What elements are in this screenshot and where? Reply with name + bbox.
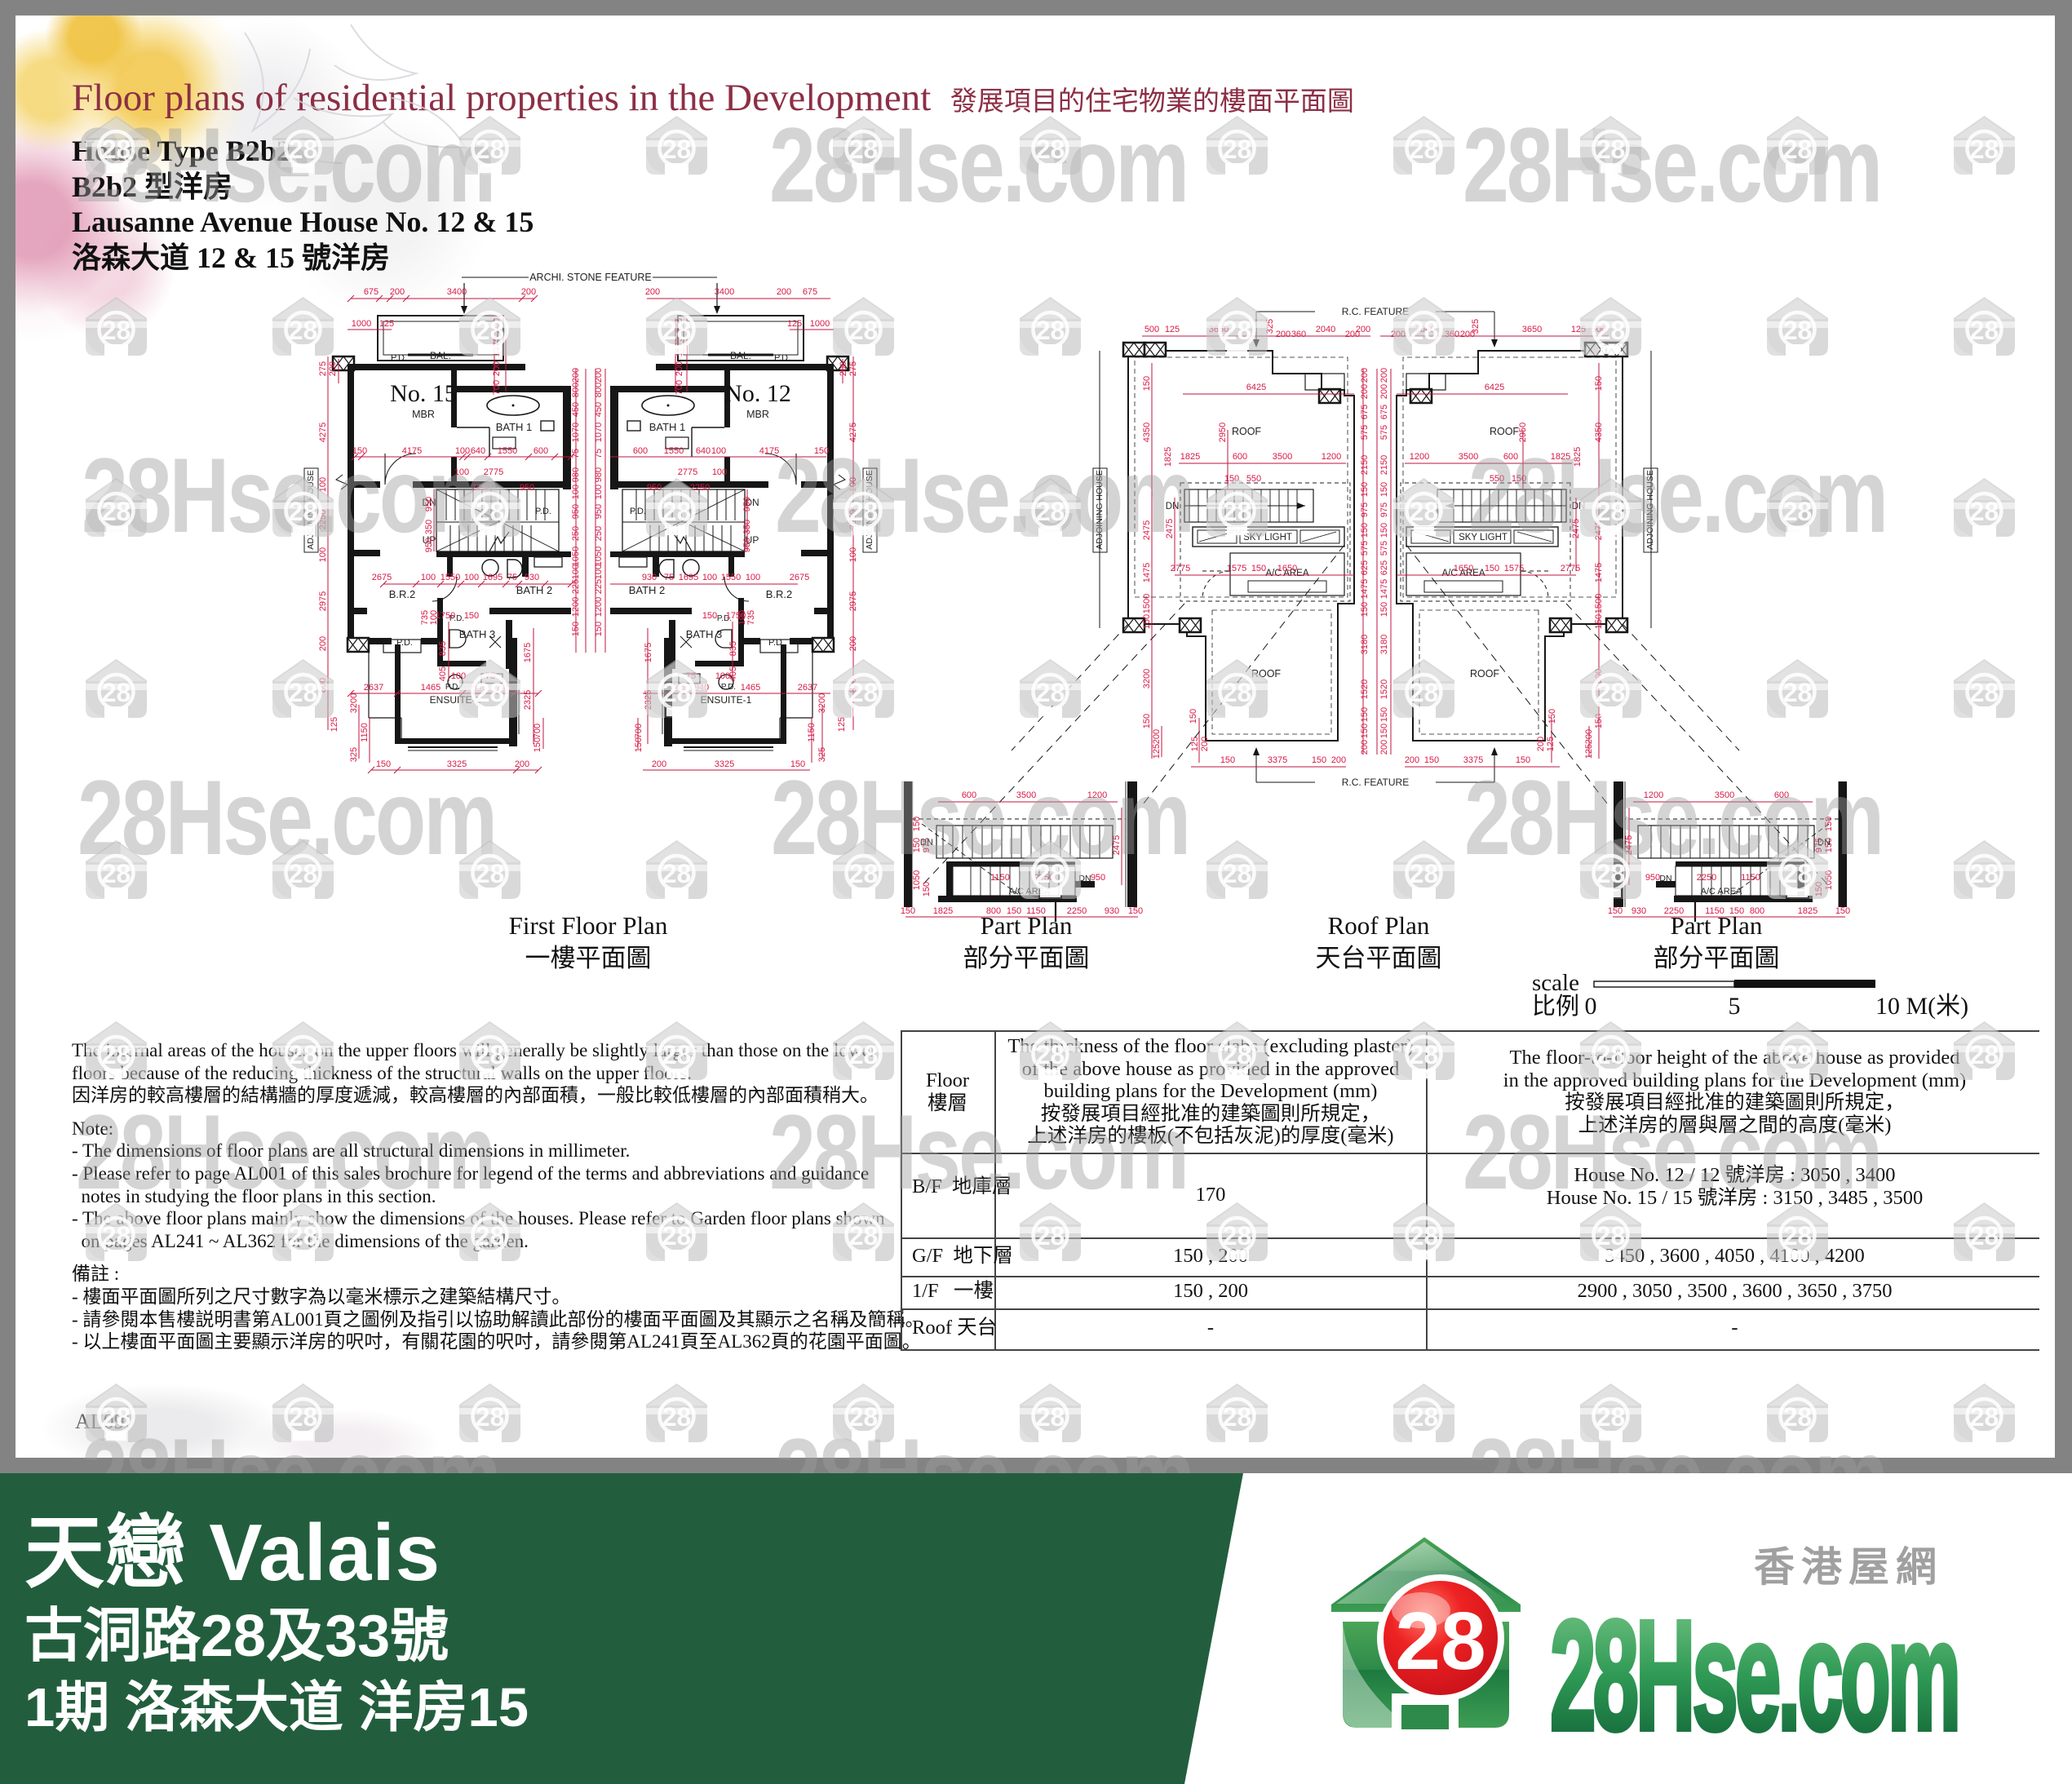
- svg-text:1695: 1695: [679, 573, 698, 582]
- svg-text:835: 835: [728, 641, 738, 656]
- svg-text:275: 275: [318, 361, 328, 376]
- svg-text:150: 150: [1360, 724, 1370, 738]
- svg-text:625: 625: [1360, 560, 1370, 575]
- svg-text:150: 150: [1360, 707, 1370, 722]
- svg-text:200: 200: [515, 759, 529, 769]
- svg-text:SKY LIGHT: SKY LIGHT: [1459, 533, 1508, 542]
- svg-text:3200: 3200: [349, 693, 359, 713]
- svg-text:2775: 2775: [484, 467, 503, 477]
- svg-text:SKY LIGHT: SKY LIGHT: [1243, 533, 1292, 542]
- svg-text:200: 200: [1405, 755, 1419, 765]
- svg-text:75: 75: [485, 671, 495, 681]
- svg-text:125: 125: [1571, 325, 1586, 334]
- svg-text:150: 150: [1360, 602, 1370, 617]
- svg-text:200: 200: [1331, 755, 1346, 765]
- svg-text:P.D.: P.D.: [396, 638, 413, 648]
- svg-text:600: 600: [1774, 790, 1789, 800]
- svg-text:150: 150: [1142, 614, 1152, 629]
- svg-text:DN: DN: [1572, 502, 1586, 511]
- svg-text:100: 100: [454, 467, 469, 477]
- svg-text:575: 575: [1360, 541, 1370, 556]
- svg-text:700: 700: [634, 724, 644, 738]
- svg-text:500: 500: [1144, 325, 1159, 334]
- svg-text:75: 75: [664, 573, 674, 582]
- svg-text:部分平面圖: 部分平面圖: [1654, 944, 1780, 972]
- svg-text:150: 150: [1379, 602, 1389, 617]
- svg-text:No. 15: No. 15: [390, 380, 457, 407]
- svg-text:2250: 2250: [318, 510, 328, 529]
- svg-text:150: 150: [1220, 755, 1235, 765]
- svg-text:200: 200: [492, 361, 502, 376]
- svg-text:1675: 1675: [523, 643, 533, 662]
- svg-text:405: 405: [438, 666, 448, 681]
- svg-text:BATH 3: BATH 3: [686, 628, 723, 640]
- svg-text:2325: 2325: [644, 690, 653, 710]
- svg-text:3180: 3180: [1360, 635, 1370, 654]
- svg-text:BATH 1: BATH 1: [649, 421, 686, 433]
- svg-text:700: 700: [533, 724, 542, 738]
- svg-text:比例: 比例: [1532, 993, 1579, 1020]
- svg-text:150: 150: [533, 737, 542, 752]
- svg-text:150: 150: [1547, 709, 1557, 724]
- svg-text:150: 150: [1516, 755, 1530, 765]
- svg-text:100: 100: [451, 671, 466, 681]
- svg-text:200: 200: [675, 318, 684, 333]
- svg-text:640: 640: [696, 446, 711, 456]
- svg-text:1475: 1475: [1142, 563, 1152, 582]
- svg-text:100: 100: [421, 573, 436, 582]
- svg-text:200: 200: [390, 287, 405, 297]
- svg-text:2475: 2475: [1165, 519, 1175, 538]
- svg-text:550: 550: [1246, 474, 1261, 484]
- svg-text:BATH 1: BATH 1: [496, 421, 533, 433]
- svg-text:200: 200: [1360, 384, 1370, 399]
- svg-text:2950: 2950: [1218, 423, 1228, 442]
- svg-text:A/C AREA: A/C AREA: [1701, 887, 1742, 896]
- svg-text:2675: 2675: [790, 573, 809, 582]
- svg-text:DN: DN: [1817, 838, 1831, 848]
- svg-text:1550: 1550: [721, 573, 741, 582]
- svg-text:200: 200: [645, 287, 660, 297]
- svg-text:1150: 1150: [360, 723, 370, 742]
- svg-text:975: 975: [1360, 502, 1370, 517]
- svg-text:200: 200: [1379, 740, 1389, 755]
- svg-text:150: 150: [1608, 906, 1623, 916]
- svg-text:100: 100: [746, 573, 760, 582]
- svg-text:1475: 1475: [1379, 579, 1389, 599]
- svg-text:4175: 4175: [759, 446, 779, 456]
- svg-text:930: 930: [525, 573, 539, 582]
- svg-text:1050: 1050: [1824, 870, 1834, 890]
- svg-text:P.D.: P.D.: [721, 683, 736, 692]
- svg-text:360: 360: [1291, 330, 1306, 339]
- svg-text:2637: 2637: [798, 683, 817, 693]
- svg-text:100: 100: [715, 671, 730, 681]
- svg-text:600: 600: [533, 446, 548, 456]
- svg-text:200: 200: [1360, 740, 1370, 755]
- svg-text:Part Plan: Part Plan: [1671, 911, 1763, 940]
- svg-text:200: 200: [839, 361, 848, 376]
- svg-text:200: 200: [1379, 368, 1389, 383]
- svg-text:一樓平面圖: 一樓平面圖: [525, 944, 652, 972]
- svg-text:200: 200: [318, 636, 328, 651]
- svg-text:200: 200: [1391, 330, 1406, 339]
- svg-text:150: 150: [1379, 523, 1389, 538]
- svg-text:天台平面圖: 天台平面圖: [1316, 944, 1442, 972]
- svg-text:BAL.: BAL.: [430, 350, 451, 361]
- svg-text:1550: 1550: [498, 446, 517, 456]
- svg-text:200: 200: [1356, 325, 1370, 334]
- svg-text:200: 200: [1536, 737, 1546, 751]
- svg-text:Roof Plan: Roof Plan: [1328, 911, 1430, 940]
- svg-text:R.C. FEATURE: R.C. FEATURE: [1342, 306, 1409, 317]
- svg-text:3180: 3180: [1379, 635, 1389, 654]
- svg-text:ADJOINING HOUSE: ADJOINING HOUSE: [865, 470, 874, 549]
- svg-text:150: 150: [790, 759, 805, 769]
- svg-text:ENSUITE-1: ENSUITE-1: [701, 694, 752, 706]
- svg-text:150: 150: [1189, 709, 1198, 724]
- svg-text:2150: 2150: [1379, 455, 1389, 475]
- svg-text:3325: 3325: [447, 759, 467, 769]
- svg-text:150: 150: [1814, 882, 1824, 896]
- svg-text:3500: 3500: [1459, 452, 1478, 462]
- svg-text:1150: 1150: [990, 873, 1010, 883]
- svg-text:125: 125: [1546, 737, 1556, 751]
- svg-text:200: 200: [675, 361, 684, 376]
- svg-text:1000: 1000: [810, 319, 830, 329]
- svg-text:640: 640: [471, 446, 485, 456]
- svg-text:1825: 1825: [1163, 447, 1173, 467]
- svg-text:150: 150: [1824, 817, 1834, 831]
- svg-text:125: 125: [1190, 737, 1200, 751]
- svg-text:150: 150: [1142, 714, 1152, 728]
- svg-text:200: 200: [1460, 330, 1475, 339]
- svg-text:2250: 2250: [1034, 873, 1054, 883]
- svg-text:950: 950: [1645, 873, 1660, 883]
- svg-text:930: 930: [1631, 906, 1646, 916]
- svg-text:1150: 1150: [1741, 873, 1760, 883]
- svg-text:ROOF: ROOF: [1251, 668, 1281, 680]
- svg-text:部分平面圖: 部分平面圖: [963, 944, 1090, 972]
- svg-text:BATH 3: BATH 3: [459, 628, 496, 640]
- svg-text:360: 360: [1445, 330, 1459, 339]
- svg-text:1825: 1825: [1180, 452, 1200, 462]
- svg-text:600: 600: [1503, 452, 1518, 462]
- svg-text:2775: 2775: [678, 467, 697, 477]
- svg-text:550: 550: [1490, 474, 1504, 484]
- svg-text:0: 0: [1585, 993, 1597, 1020]
- svg-text:2040: 2040: [1316, 325, 1335, 334]
- svg-text:975: 975: [1379, 502, 1389, 517]
- svg-text:125: 125: [787, 319, 802, 329]
- svg-text:575: 575: [1379, 541, 1389, 556]
- svg-text:350: 350: [424, 520, 434, 534]
- svg-text:100: 100: [464, 573, 479, 582]
- svg-text:ROOF: ROOF: [1232, 426, 1261, 437]
- svg-text:625: 625: [1379, 560, 1389, 575]
- svg-text:150: 150: [352, 446, 367, 456]
- svg-text:2775: 2775: [1561, 564, 1580, 573]
- svg-text:950: 950: [520, 483, 534, 493]
- svg-text:2975: 2975: [318, 591, 328, 611]
- svg-text:835: 835: [438, 641, 448, 656]
- svg-text:2325: 2325: [523, 690, 533, 710]
- svg-text:6425: 6425: [1246, 383, 1266, 392]
- svg-text:1200: 1200: [1410, 452, 1429, 462]
- svg-text:930: 930: [1105, 906, 1119, 916]
- svg-text:2250: 2250: [1697, 873, 1716, 883]
- svg-text:100: 100: [711, 446, 726, 456]
- svg-text:MBR: MBR: [412, 409, 435, 420]
- svg-text:2250: 2250: [472, 483, 491, 493]
- svg-text:200: 200: [1152, 729, 1162, 744]
- svg-text:700: 700: [675, 380, 684, 395]
- svg-text:5: 5: [1729, 993, 1741, 1020]
- svg-text:R.C. FEATURE: R.C. FEATURE: [1342, 777, 1409, 788]
- svg-text:10 M(米): 10 M(米): [1875, 993, 1968, 1020]
- svg-text:28: 28: [1395, 1596, 1485, 1687]
- svg-text:1050: 1050: [912, 870, 922, 890]
- svg-text:P.D.: P.D.: [630, 507, 646, 516]
- svg-text:200: 200: [652, 759, 666, 769]
- svg-text:675: 675: [364, 287, 379, 297]
- svg-text:125: 125: [837, 717, 847, 732]
- svg-text:香港屋網: 香港屋網: [1754, 1544, 1943, 1590]
- svg-text:600: 600: [633, 446, 648, 456]
- svg-text:ADJOINING HOUSE: ADJOINING HOUSE: [306, 470, 316, 549]
- svg-text:950: 950: [647, 483, 662, 493]
- svg-text:200: 200: [328, 361, 338, 376]
- svg-text:2475: 2475: [1142, 520, 1152, 540]
- svg-text:2775: 2775: [1171, 564, 1190, 573]
- svg-text:200: 200: [1276, 330, 1291, 339]
- svg-text:150: 150: [1835, 906, 1850, 916]
- svg-text:1465: 1465: [741, 683, 760, 693]
- svg-text:1200: 1200: [1322, 452, 1341, 462]
- svg-text:325: 325: [349, 747, 359, 762]
- svg-text:200: 200: [1200, 737, 1210, 751]
- svg-text:150: 150: [1312, 755, 1326, 765]
- svg-text:575: 575: [1379, 425, 1389, 440]
- svg-text:150: 150: [376, 759, 391, 769]
- svg-text:1575: 1575: [1227, 564, 1246, 573]
- svg-text:150: 150: [922, 882, 932, 896]
- svg-text:200: 200: [777, 287, 791, 297]
- svg-text:150: 150: [1128, 906, 1143, 916]
- svg-text:scale: scale: [1532, 970, 1579, 996]
- svg-text:1695: 1695: [483, 573, 503, 582]
- svg-text:125: 125: [1165, 325, 1180, 334]
- svg-text:First Floor Plan: First Floor Plan: [509, 911, 668, 940]
- svg-text:3375: 3375: [1463, 755, 1483, 765]
- svg-text:DN: DN: [920, 838, 933, 848]
- svg-text:B.R.2: B.R.2: [766, 588, 793, 600]
- svg-text:150: 150: [901, 906, 915, 916]
- svg-text:P.D.: P.D.: [445, 683, 460, 692]
- svg-text:4175: 4175: [402, 446, 422, 456]
- svg-text:150: 150: [1142, 376, 1152, 391]
- svg-text:3500: 3500: [1273, 452, 1292, 462]
- svg-text:3500: 3500: [1715, 790, 1734, 800]
- svg-text:3650: 3650: [1522, 325, 1542, 334]
- svg-text:4350: 4350: [1142, 423, 1152, 442]
- svg-text:3650: 3650: [1209, 325, 1229, 334]
- svg-text:2150: 2150: [1360, 455, 1370, 475]
- svg-text:700: 700: [492, 380, 502, 395]
- svg-text:1650: 1650: [1277, 564, 1297, 573]
- svg-text:ROOF: ROOF: [1470, 668, 1499, 680]
- svg-text:100: 100: [712, 467, 727, 477]
- svg-text:3325: 3325: [715, 759, 734, 769]
- svg-text:BATH 2: BATH 2: [516, 584, 553, 596]
- svg-text:1200: 1200: [1087, 790, 1107, 800]
- svg-text:BATH 2: BATH 2: [629, 584, 666, 596]
- svg-text:3200: 3200: [1142, 669, 1152, 688]
- svg-text:150: 150: [1424, 755, 1439, 765]
- svg-text:150: 150: [1485, 564, 1499, 573]
- svg-text:600: 600: [962, 790, 976, 800]
- svg-text:800: 800: [318, 678, 328, 693]
- svg-text:150: 150: [1379, 707, 1389, 722]
- svg-text:150: 150: [702, 611, 717, 621]
- svg-text:1825: 1825: [1573, 447, 1583, 467]
- svg-text:P.D.: P.D.: [535, 507, 551, 516]
- svg-text:100: 100: [455, 446, 470, 456]
- svg-text:675: 675: [1360, 405, 1370, 419]
- svg-text:3400: 3400: [715, 287, 734, 297]
- svg-text:1650: 1650: [1454, 564, 1473, 573]
- svg-text:1675: 1675: [644, 643, 653, 662]
- svg-text:1475: 1475: [1360, 579, 1370, 599]
- svg-text:675: 675: [1379, 405, 1389, 419]
- svg-text:100: 100: [737, 610, 747, 625]
- svg-text:P.D.: P.D.: [774, 353, 790, 363]
- svg-text:150: 150: [912, 817, 922, 831]
- svg-text:1000: 1000: [352, 319, 371, 329]
- svg-text:150: 150: [1360, 482, 1370, 497]
- svg-text:1825: 1825: [1798, 906, 1817, 916]
- svg-text:150: 150: [1379, 724, 1389, 738]
- svg-text:150: 150: [814, 446, 829, 456]
- svg-text:2637: 2637: [364, 683, 383, 693]
- svg-text:MBR: MBR: [746, 409, 769, 420]
- svg-text:575: 575: [1360, 425, 1370, 440]
- svg-text:200: 200: [492, 318, 502, 333]
- svg-text:ROOF: ROOF: [1490, 426, 1519, 437]
- svg-text:1465: 1465: [421, 683, 441, 693]
- svg-text:1520: 1520: [1360, 680, 1370, 699]
- svg-text:200: 200: [1360, 368, 1370, 383]
- svg-text:745: 745: [671, 683, 685, 693]
- svg-text:150: 150: [1251, 564, 1266, 573]
- svg-text:B.R.2: B.R.2: [389, 588, 416, 600]
- svg-text:ENSUITE-1: ENSUITE-1: [430, 694, 481, 706]
- svg-text:125: 125: [379, 319, 394, 329]
- svg-text:No. 12: No. 12: [724, 380, 791, 407]
- svg-text:600: 600: [1233, 452, 1247, 462]
- svg-text:ARCHI. STONE FEATURE: ARCHI. STONE FEATURE: [529, 272, 652, 283]
- svg-text:6425: 6425: [1485, 383, 1504, 392]
- svg-text:3400: 3400: [447, 287, 467, 297]
- svg-text:200: 200: [521, 287, 536, 297]
- svg-text:150: 150: [1512, 474, 1526, 484]
- svg-text:675: 675: [803, 287, 817, 297]
- svg-text:2475: 2475: [1112, 835, 1122, 855]
- svg-text:1500: 1500: [1142, 594, 1152, 613]
- svg-text:4275: 4275: [318, 423, 328, 442]
- svg-text:100: 100: [429, 610, 439, 625]
- svg-text:1825: 1825: [933, 906, 953, 916]
- svg-text:ADJOINING HOUSE: ADJOINING HOUSE: [1645, 470, 1655, 549]
- svg-text:940: 940: [694, 683, 709, 693]
- svg-text:BAL.: BAL.: [730, 350, 751, 361]
- svg-text:75: 75: [686, 671, 696, 681]
- svg-text:940: 940: [472, 683, 487, 693]
- svg-text:930: 930: [642, 573, 657, 582]
- svg-text:100: 100: [318, 547, 328, 562]
- svg-text:1200: 1200: [1644, 790, 1663, 800]
- svg-text:1550: 1550: [664, 446, 684, 456]
- svg-text:2675: 2675: [372, 573, 392, 582]
- svg-text:DN: DN: [1166, 502, 1180, 511]
- svg-text:150: 150: [634, 737, 644, 752]
- svg-text:125: 125: [1152, 744, 1162, 759]
- svg-text:950: 950: [424, 538, 434, 552]
- svg-text:150: 150: [1360, 523, 1370, 538]
- svg-text:200: 200: [1379, 384, 1389, 399]
- svg-text:150: 150: [1379, 482, 1389, 497]
- svg-text:2250: 2250: [690, 483, 710, 493]
- svg-text:28Hse.com: 28Hse.com: [1550, 1587, 1958, 1752]
- svg-text:100: 100: [318, 477, 328, 492]
- svg-text:1375: 1375: [675, 337, 684, 356]
- svg-text:DN: DN: [1078, 874, 1091, 883]
- svg-text:150: 150: [464, 611, 479, 621]
- svg-text:P.D.: P.D.: [391, 353, 407, 363]
- svg-text:1575: 1575: [1504, 564, 1524, 573]
- svg-text:Part Plan: Part Plan: [981, 911, 1073, 940]
- svg-text:1825: 1825: [1551, 452, 1570, 462]
- svg-text:2040: 2040: [1415, 325, 1435, 334]
- svg-text:100: 100: [702, 573, 717, 582]
- svg-text:125: 125: [330, 717, 339, 732]
- svg-text:950: 950: [1091, 873, 1105, 883]
- svg-text:A/C AREA: A/C AREA: [1009, 887, 1051, 896]
- svg-text:1375: 1375: [492, 337, 502, 356]
- svg-text:P.D.: P.D.: [768, 638, 785, 648]
- svg-text:1520: 1520: [1379, 680, 1389, 699]
- svg-text:325: 325: [1265, 319, 1275, 334]
- svg-text:3500: 3500: [1016, 790, 1036, 800]
- svg-text:950: 950: [424, 497, 434, 511]
- svg-text:150: 150: [1224, 474, 1239, 484]
- svg-text:DN: DN: [1659, 874, 1671, 883]
- svg-text:745: 745: [496, 683, 511, 693]
- svg-text:500: 500: [1592, 325, 1606, 334]
- svg-text:735: 735: [746, 610, 756, 625]
- svg-text:3375: 3375: [1268, 755, 1287, 765]
